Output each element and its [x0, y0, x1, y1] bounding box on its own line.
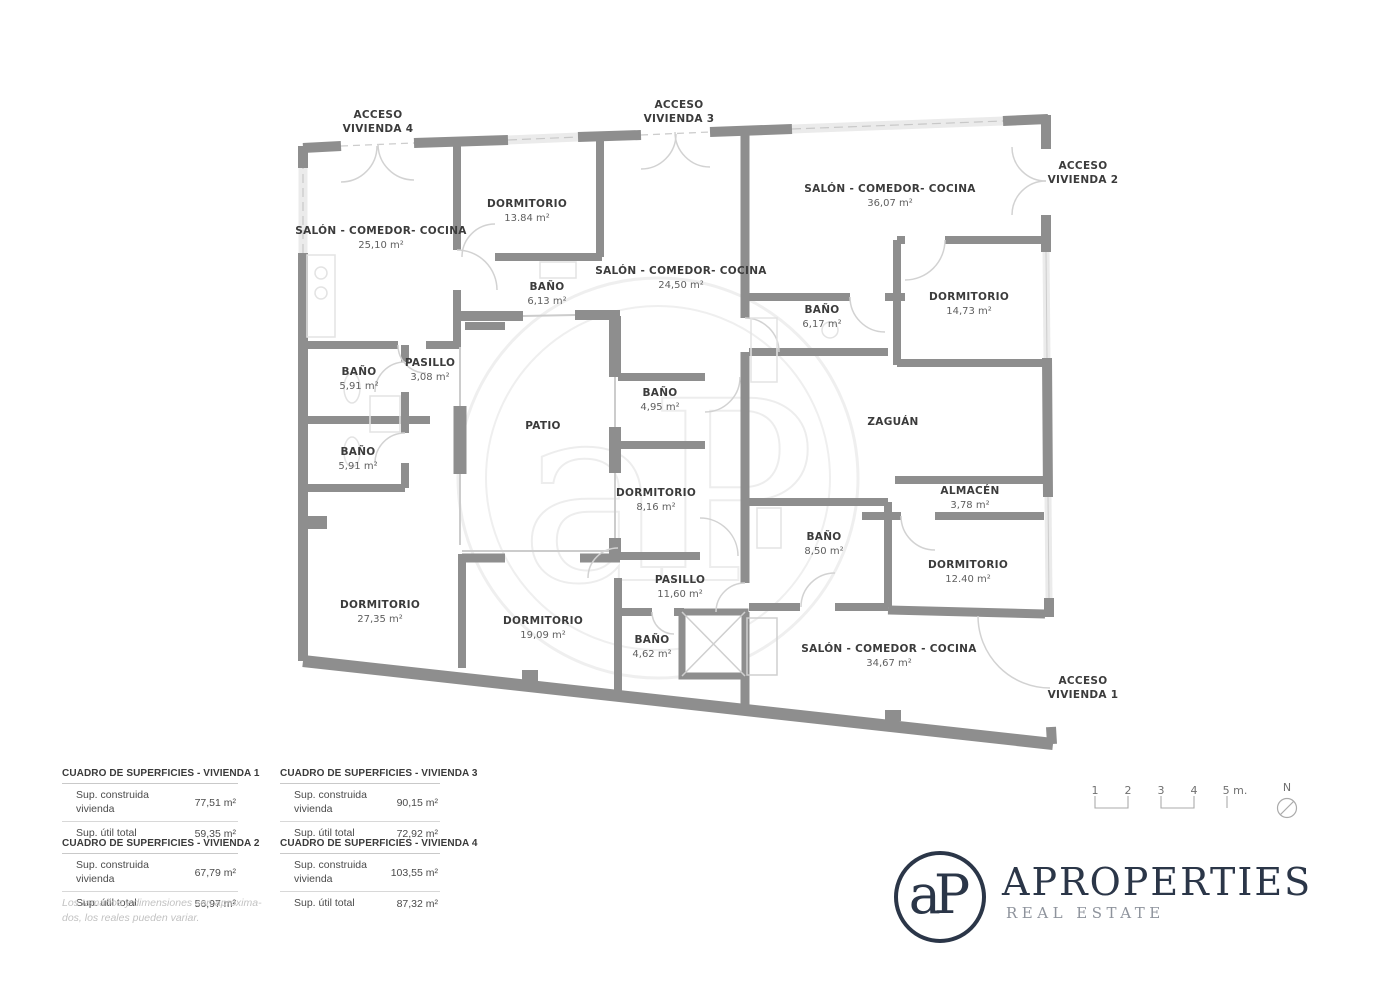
floorplan-page: aP [0, 0, 1400, 990]
room-label-dormitorio-2735: DORMITORIO27,35 m² [340, 599, 420, 626]
surface-table-title: CUADRO DE SUPERFICIES - VIVIENDA 4 [280, 838, 440, 854]
room-label-bano-591b: BAÑO5,91 m² [338, 446, 377, 473]
room-label-almacen: ALMACÉN3,78 m² [940, 485, 999, 512]
surface-table-vivienda-3: CUADRO DE SUPERFICIES - VIVIENDA 3 Sup. … [280, 768, 440, 846]
room-label-dormitorio-1384: DORMITORIO13.84 m² [487, 198, 567, 225]
table-row: Sup. construida vivienda77,51 m² [62, 784, 238, 822]
room-label-bano-613: BAÑO6,13 m² [527, 281, 566, 308]
access-label-vivienda-4: ACCESO VIVIENDA 4 [343, 109, 414, 136]
access-label-vivienda-3: ACCESO VIVIENDA 3 [644, 99, 715, 126]
surface-table-vivienda-4: CUADRO DE SUPERFICIES - VIVIENDA 4 Sup. … [280, 838, 440, 916]
room-label-zaguan: ZAGUÁN [867, 416, 918, 430]
room-label-salon-vivienda4: SALÓN - COMEDOR- COCINA25,10 m² [295, 225, 466, 252]
room-label-bano-462: BAÑO4,62 m² [632, 634, 671, 661]
room-label-patio: PATIO [525, 420, 561, 434]
table-row: Sup. útil total87,32 m² [280, 892, 440, 916]
brand-monogram: aP [909, 863, 964, 926]
room-label-bano-617: BAÑO6,17 m² [802, 304, 841, 331]
room-label-bano-495: BAÑO4,95 m² [640, 387, 679, 414]
north-label: N [1283, 781, 1291, 794]
scale-mark-2: 2 [1125, 784, 1132, 797]
room-label-pasillo-308: PASILLO3,08 m² [405, 357, 455, 384]
scale-bar-graphic [1095, 796, 1227, 808]
room-label-bano-591a: BAÑO5,91 m² [339, 366, 378, 393]
access-label-vivienda-1: ACCESO VIVIENDA 1 [1048, 675, 1119, 702]
surface-table-title: CUADRO DE SUPERFICIES - VIVIENDA 1 [62, 768, 238, 784]
room-label-dormitorio-816: DORMITORIO8,16 m² [616, 487, 696, 514]
access-label-vivienda-2: ACCESO VIVIENDA 2 [1048, 160, 1119, 187]
brand-name: APROPERTIES [1002, 860, 1312, 904]
room-label-bano-850: BAÑO8,50 m² [804, 531, 843, 558]
disclaimer-text: Los tamaños y dimensiones son aproxima- … [62, 896, 277, 926]
room-label-salon-vivienda2: SALÓN - COMEDOR- COCINA36,07 m² [804, 183, 975, 210]
table-row: Sup. construida vivienda67,79 m² [62, 854, 238, 892]
room-label-dormitorio-1473: DORMITORIO14,73 m² [929, 291, 1009, 318]
room-label-pasillo-1160: PASILLO11,60 m² [655, 574, 705, 601]
surface-table-title: CUADRO DE SUPERFICIES - VIVIENDA 2 [62, 838, 238, 854]
room-label-dormitorio-1909: DORMITORIO19,09 m² [503, 615, 583, 642]
scale-mark-1: 1 [1092, 784, 1099, 797]
surface-table-title: CUADRO DE SUPERFICIES - VIVIENDA 3 [280, 768, 440, 784]
table-row: Sup. construida vivienda103,55 m² [280, 854, 440, 892]
room-label-salon-vivienda3: SALÓN - COMEDOR- COCINA24,50 m² [595, 265, 766, 292]
scale-mark-3: 3 [1158, 784, 1165, 797]
brand-tagline: REAL ESTATE [1006, 904, 1165, 922]
north-arrow-icon [1278, 799, 1297, 818]
scale-mark-5m: 5 m. [1223, 784, 1248, 797]
scale-mark-4: 4 [1191, 784, 1198, 797]
surface-table-vivienda-1: CUADRO DE SUPERFICIES - VIVIENDA 1 Sup. … [62, 768, 238, 846]
room-label-salon-vivienda1: SALÓN - COMEDOR - COCINA34,67 m² [801, 643, 976, 670]
room-label-dormitorio-1240: DORMITORIO12.40 m² [928, 559, 1008, 586]
table-row: Sup. construida vivienda90,15 m² [280, 784, 440, 822]
brand-logo-mark: aP [894, 851, 986, 943]
